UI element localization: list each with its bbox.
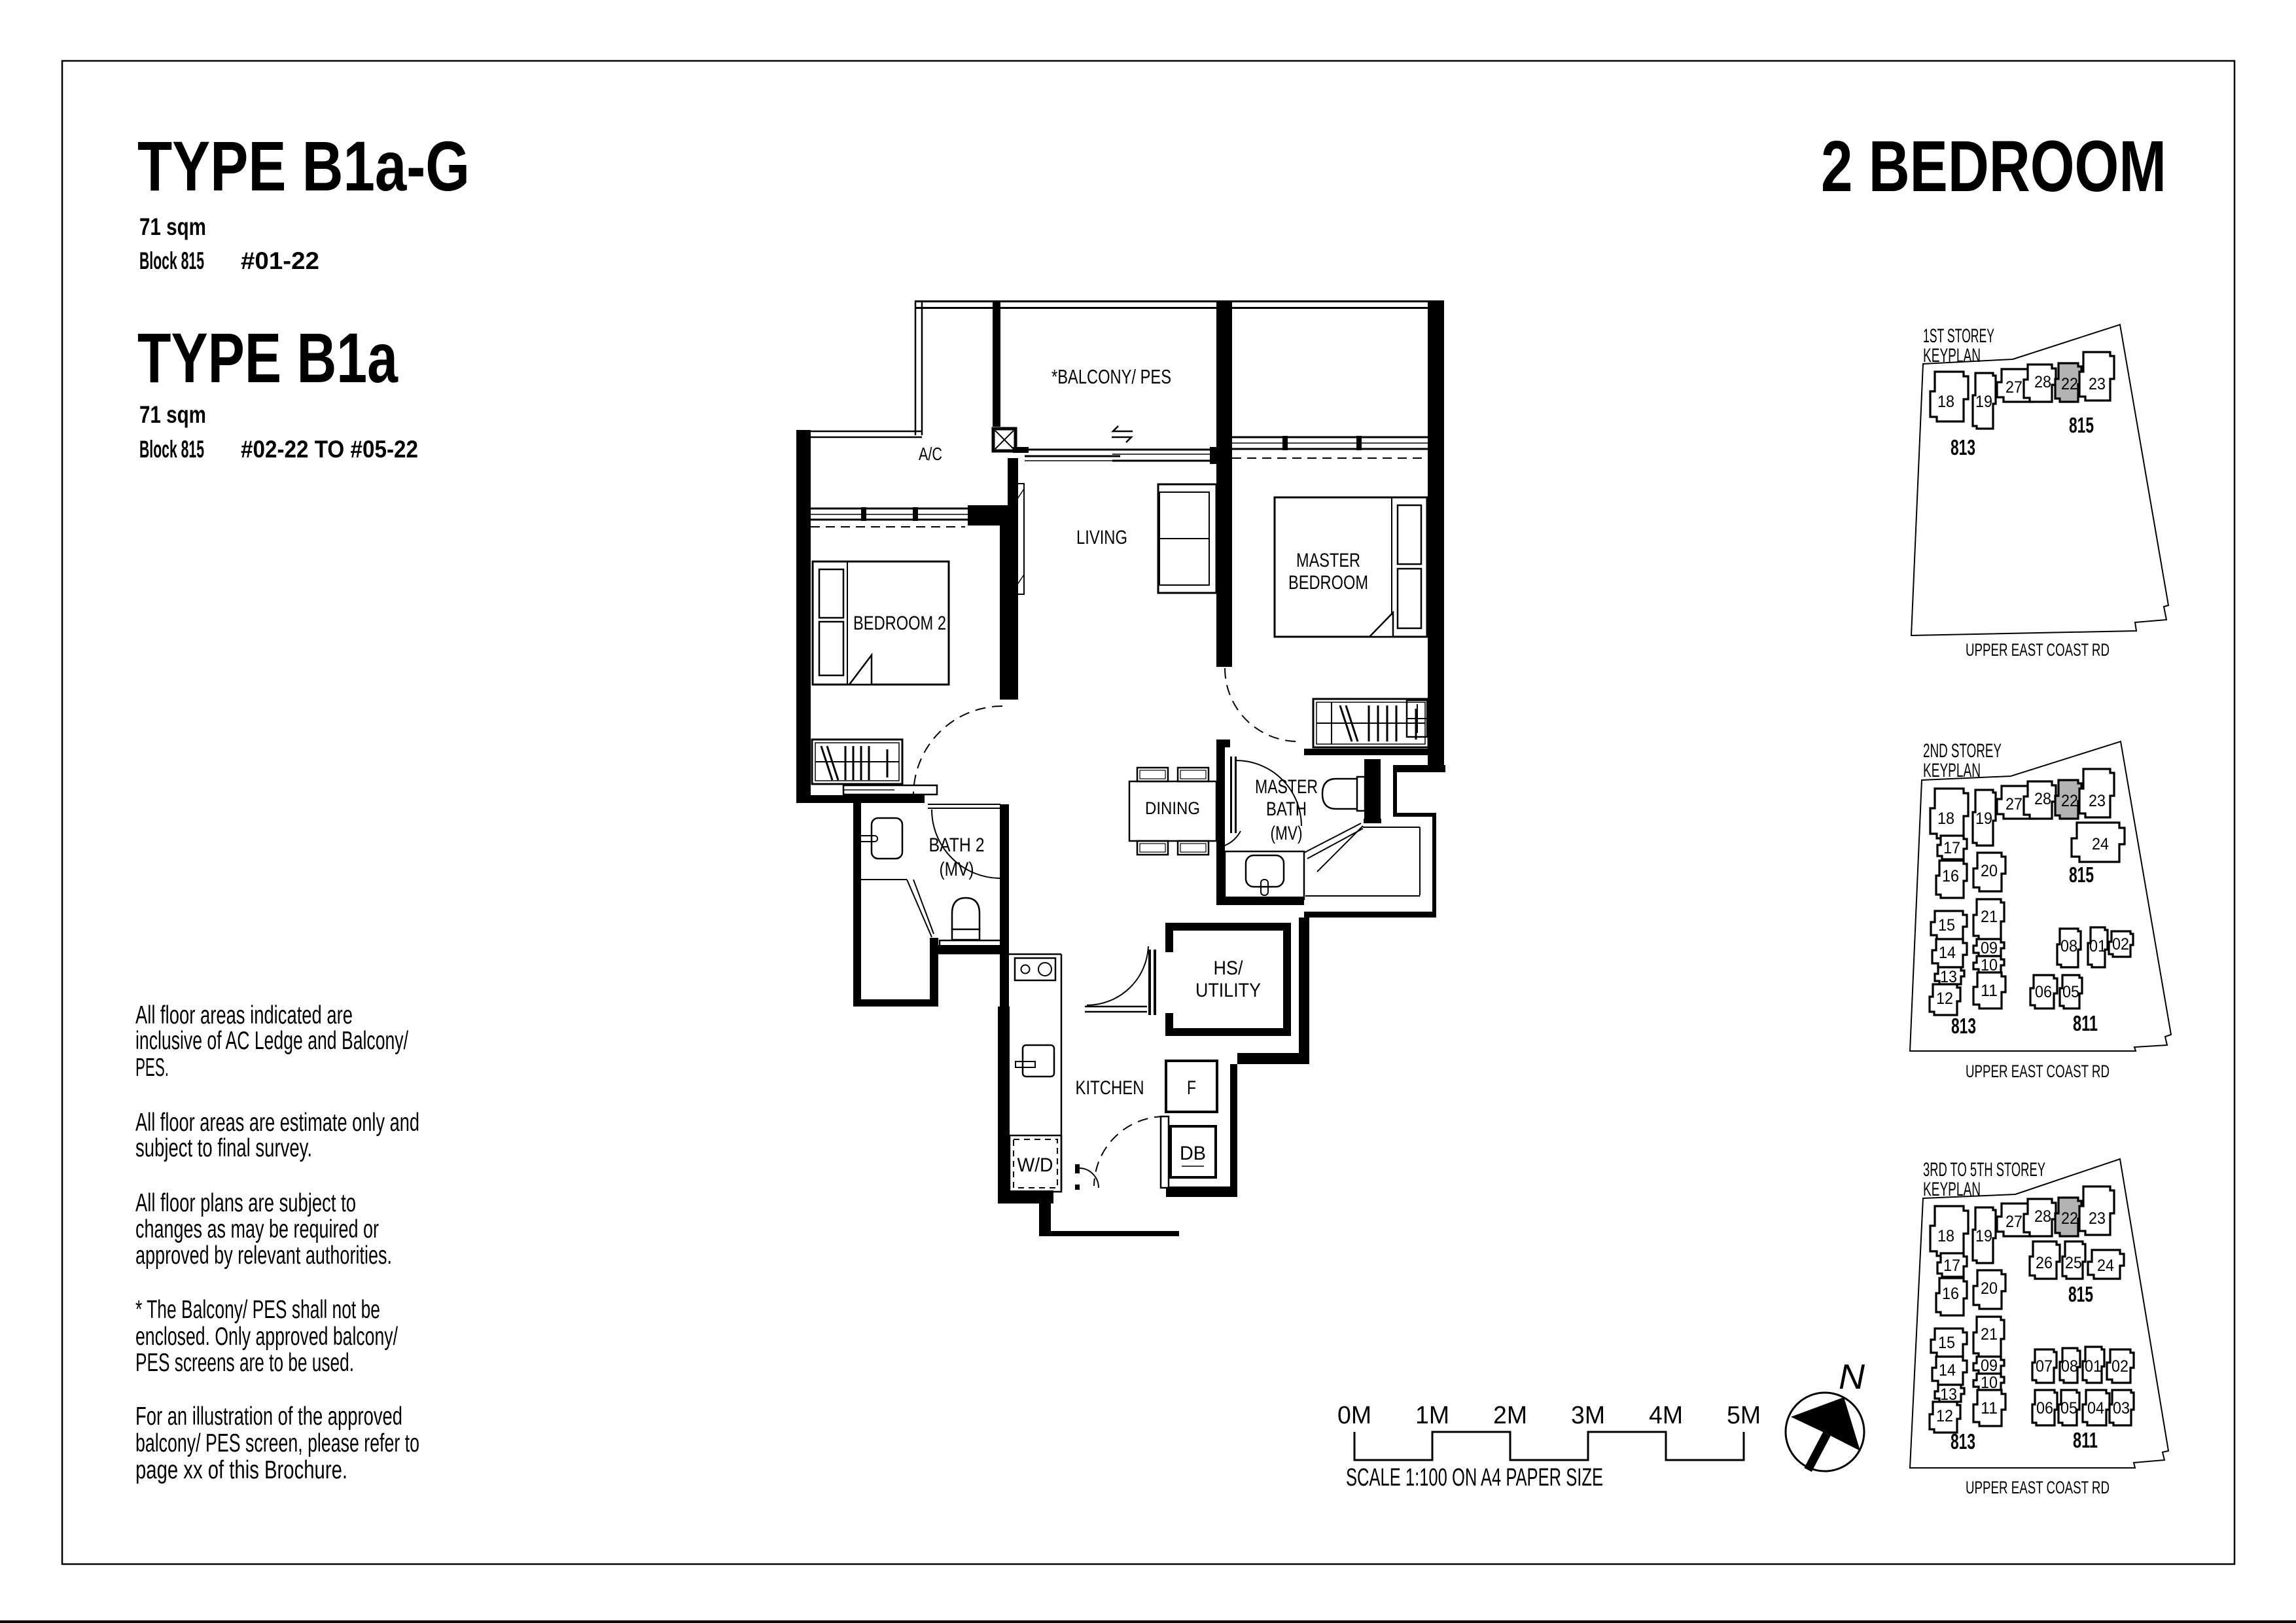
svg-text:3RD TO 5TH STOREY: 3RD TO 5TH STOREY — [1923, 1159, 2045, 1181]
svg-text:22: 22 — [2061, 792, 2078, 810]
svg-text:06: 06 — [2036, 1399, 2053, 1418]
svg-text:0M: 0M — [1337, 1402, 1371, 1429]
svg-text:*BALCONY/ PES: *BALCONY/ PES — [1051, 365, 1171, 388]
svg-text:27: 27 — [2005, 1213, 2022, 1231]
svg-text:08: 08 — [2061, 1357, 2078, 1376]
svg-text:BEDROOM: BEDROOM — [1288, 572, 1368, 594]
svg-text:16: 16 — [1942, 867, 1959, 885]
svg-text:DB: DB — [1180, 1143, 1206, 1164]
svg-text:05: 05 — [2062, 983, 2079, 1001]
svg-text:23: 23 — [2089, 375, 2106, 393]
svg-text:DINING: DINING — [1145, 798, 1200, 818]
svg-text:#01-22: #01-22 — [241, 247, 319, 274]
svg-text:2ND STOREY: 2ND STOREY — [1923, 740, 2002, 762]
svg-text:813: 813 — [1951, 1429, 1975, 1454]
svg-text:815: 815 — [2069, 413, 2094, 437]
svg-text:14: 14 — [1939, 944, 1956, 962]
svg-text:LIVING: LIVING — [1076, 527, 1127, 548]
svg-text:15: 15 — [1938, 1334, 1955, 1352]
svg-text:21: 21 — [1981, 908, 1998, 926]
svg-text:16: 16 — [1942, 1285, 1959, 1303]
svg-text:All floor areas are estimate o: All floor areas are estimate only and — [135, 1109, 419, 1137]
svg-text:28: 28 — [2034, 1207, 2051, 1226]
svg-text:811: 811 — [2073, 1011, 2098, 1035]
svg-text:815: 815 — [2068, 1282, 2093, 1306]
svg-text:27: 27 — [2005, 795, 2022, 813]
svg-text:approved by relevant authoriti: approved by relevant authorities. — [135, 1241, 392, 1270]
svg-text:23: 23 — [2089, 792, 2106, 810]
svg-text:19: 19 — [1975, 810, 1992, 828]
svg-text:#02-22 TO #05-22: #02-22 TO #05-22 — [241, 436, 418, 463]
svg-text:BEDROOM 2: BEDROOM 2 — [853, 613, 946, 634]
svg-text:BATH 2: BATH 2 — [929, 834, 985, 856]
svg-text:24: 24 — [2097, 1257, 2114, 1275]
svg-text:28: 28 — [2034, 373, 2051, 391]
svg-text:UTILITY: UTILITY — [1195, 980, 1261, 1001]
svg-text:(MV): (MV) — [940, 859, 974, 880]
svg-text:20: 20 — [1981, 1279, 1998, 1298]
svg-text:01: 01 — [2089, 937, 2106, 955]
svg-text:02: 02 — [2112, 935, 2129, 954]
svg-text:UPPER EAST COAST RD: UPPER EAST COAST RD — [1966, 1061, 2110, 1081]
svg-text:changes as may be required or: changes as may be required or — [135, 1215, 379, 1243]
svg-text:18: 18 — [1937, 810, 1954, 828]
svg-text:HS/: HS/ — [1214, 957, 1244, 979]
svg-text:Block 815: Block 815 — [139, 436, 204, 463]
svg-text:For an illustration of the app: For an illustration of the approved — [135, 1402, 402, 1431]
svg-text:enclosed. Only approved balcon: enclosed. Only approved balcony/ — [135, 1323, 398, 1351]
svg-text:03: 03 — [2113, 1399, 2130, 1418]
svg-text:1ST STOREY: 1ST STOREY — [1923, 325, 1994, 347]
svg-text:21: 21 — [1981, 1325, 1998, 1344]
svg-text:subject to final survey.: subject to final survey. — [135, 1134, 312, 1162]
svg-text:25: 25 — [2065, 1254, 2082, 1272]
svg-text:page xx of this Brochure.: page xx of this Brochure. — [135, 1456, 347, 1484]
svg-text:24: 24 — [2092, 835, 2109, 853]
svg-text:813: 813 — [1951, 435, 1975, 459]
svg-text:11: 11 — [1981, 1399, 1998, 1418]
svg-text:71 sqm: 71 sqm — [139, 213, 206, 240]
svg-text:71 sqm: 71 sqm — [139, 401, 206, 428]
svg-text:TYPE B1a: TYPE B1a — [137, 318, 398, 397]
svg-text:20: 20 — [1981, 862, 1998, 880]
svg-text:MASTER: MASTER — [1255, 776, 1318, 798]
svg-text:15: 15 — [1938, 916, 1955, 935]
svg-text:09: 09 — [1981, 939, 1998, 957]
svg-text:1M: 1M — [1415, 1402, 1449, 1429]
svg-text:05: 05 — [2060, 1399, 2077, 1418]
svg-text:inclusive of AC Ledge and Balc: inclusive of AC Ledge and Balcony/ — [135, 1027, 408, 1055]
svg-text:06: 06 — [2035, 983, 2052, 1001]
svg-text:All floor areas indicated are: All floor areas indicated are — [135, 1001, 353, 1029]
svg-text:14: 14 — [1939, 1361, 1956, 1380]
svg-text:MASTER: MASTER — [1296, 550, 1360, 571]
svg-text:* The Balcony/ PES shall not b: * The Balcony/ PES shall not be — [135, 1296, 380, 1324]
svg-text:PES screens are to be used.: PES screens are to be used. — [135, 1349, 354, 1377]
svg-text:(MV): (MV) — [1271, 823, 1303, 844]
svg-text:18: 18 — [1937, 1227, 1954, 1245]
svg-text:SCALE 1:100 ON A4 PAPER SIZE: SCALE 1:100 ON A4 PAPER SIZE — [1346, 1464, 1603, 1491]
svg-text:26: 26 — [2036, 1254, 2053, 1272]
svg-text:09: 09 — [1981, 1357, 1998, 1375]
svg-text:19: 19 — [1975, 1227, 1992, 1245]
svg-text:2M: 2M — [1493, 1402, 1527, 1429]
svg-text:815: 815 — [2069, 863, 2094, 887]
svg-text:TYPE B1a-G: TYPE B1a-G — [137, 126, 470, 205]
svg-text:W/D: W/D — [1017, 1154, 1053, 1176]
svg-text:811: 811 — [2073, 1428, 2098, 1452]
svg-text:813: 813 — [1951, 1014, 1976, 1038]
svg-text:02: 02 — [2111, 1357, 2128, 1376]
svg-text:23: 23 — [2089, 1209, 2106, 1228]
svg-text:28: 28 — [2034, 790, 2051, 808]
svg-text:Block 815: Block 815 — [139, 247, 204, 274]
svg-text:19: 19 — [1975, 393, 1992, 411]
svg-text:18: 18 — [1937, 393, 1954, 411]
svg-text:12: 12 — [1936, 1407, 1953, 1425]
svg-text:BATH: BATH — [1266, 798, 1307, 820]
svg-text:27: 27 — [2005, 378, 2022, 397]
svg-text:11: 11 — [1981, 982, 1998, 1000]
svg-text:04: 04 — [2087, 1399, 2104, 1418]
svg-text:UPPER EAST COAST RD: UPPER EAST COAST RD — [1966, 1478, 2110, 1497]
svg-text:12: 12 — [1936, 990, 1953, 1008]
svg-text:2 BEDROOM: 2 BEDROOM — [1821, 126, 2166, 207]
svg-text:A/C: A/C — [919, 444, 942, 464]
svg-text:KITCHEN: KITCHEN — [1076, 1077, 1144, 1099]
svg-text:F: F — [1187, 1077, 1196, 1099]
svg-text:08: 08 — [2060, 937, 2077, 955]
svg-text:UPPER EAST COAST RD: UPPER EAST COAST RD — [1966, 640, 2110, 660]
svg-text:N: N — [1839, 1357, 1865, 1397]
svg-text:5M: 5M — [1727, 1402, 1761, 1429]
svg-text:22: 22 — [2061, 375, 2078, 393]
svg-text:01: 01 — [2085, 1357, 2102, 1376]
svg-text:22: 22 — [2061, 1209, 2078, 1228]
svg-text:17: 17 — [1943, 839, 1960, 857]
svg-text:PES.: PES. — [135, 1054, 169, 1082]
svg-text:07: 07 — [2036, 1357, 2053, 1376]
svg-text:All floor plans are subject to: All floor plans are subject to — [135, 1189, 356, 1217]
svg-text:4M: 4M — [1649, 1402, 1683, 1429]
svg-text:3M: 3M — [1571, 1402, 1605, 1429]
svg-text:balcony/ PES screen, please re: balcony/ PES screen, please refer to — [135, 1429, 419, 1457]
svg-text:17: 17 — [1943, 1257, 1960, 1275]
